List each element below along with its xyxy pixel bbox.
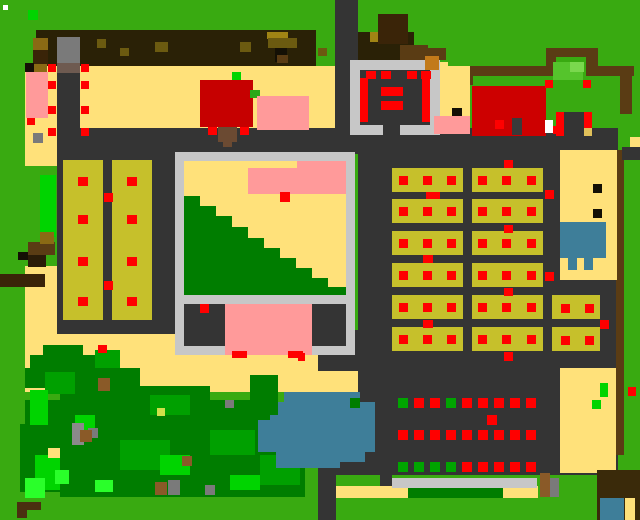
red-house-east[interactable]: [472, 86, 546, 136]
stall-dot[interactable]: [447, 303, 456, 312]
shrine-lamp: [421, 71, 431, 79]
crop-dot[interactable]: [127, 177, 137, 186]
stall-dot[interactable]: [447, 207, 456, 216]
crop-dot[interactable]: [127, 257, 137, 266]
apple-door-step: [223, 138, 232, 147]
hedge-dark: [408, 488, 503, 498]
apple-stem: [232, 72, 241, 80]
tree-patch: [250, 375, 278, 415]
gate-dot[interactable]: [48, 64, 56, 72]
east-gate[interactable]: [564, 112, 584, 136]
bench-gray: [392, 478, 537, 488]
wall-end-gold: [33, 38, 48, 50]
gate-dot[interactable]: [48, 128, 56, 136]
post-brown: [540, 473, 550, 497]
stump-black: [18, 252, 28, 260]
path-dot[interactable]: [504, 225, 513, 233]
crowd-dot[interactable]: [487, 415, 497, 425]
wall-speckle-4: [240, 42, 251, 52]
forest-canopy-light: [230, 475, 260, 490]
stall-dot[interactable]: [399, 303, 408, 312]
forest-trunk: [80, 430, 92, 442]
market-hall-divider: [184, 295, 346, 304]
stall-dot[interactable]: [399, 271, 408, 280]
market-field-step: [328, 287, 346, 295]
crowd-dot[interactable]: [398, 430, 408, 440]
stall-dot[interactable]: [502, 176, 511, 185]
stall-dot[interactable]: [423, 303, 432, 312]
stall-dot[interactable]: [478, 207, 487, 216]
crowd-dot[interactable]: [526, 398, 536, 408]
wall-speckle-3: [155, 42, 168, 52]
road-stub-east: [622, 147, 640, 160]
stall-dot[interactable]: [478, 271, 487, 280]
pig-snout: [598, 232, 606, 248]
crop-dot[interactable]: [78, 215, 88, 224]
gate-dot[interactable]: [81, 106, 89, 114]
crowd-dot[interactable]: [446, 462, 456, 472]
black-pixel-wall: [25, 63, 34, 72]
forest-canopy-mid: [45, 372, 75, 394]
ground-below-road: [320, 371, 362, 392]
stall-dot[interactable]: [585, 304, 594, 313]
shrine-lamp: [407, 71, 417, 79]
crop-dot[interactable]: [78, 297, 88, 306]
shrine-emblem-bottom: [381, 101, 403, 110]
crowd-dot[interactable]: [494, 398, 504, 408]
sheep-muzzle: [434, 116, 470, 134]
red-pixel-roadside: [298, 353, 305, 361]
shrine-foot-l: [350, 125, 383, 135]
gate-dot[interactable]: [48, 106, 56, 114]
tree-canopy-top: [378, 14, 408, 44]
road-pocket: [336, 462, 380, 475]
dot-forest[interactable]: [98, 345, 107, 353]
market-field-step: [184, 196, 200, 295]
sprout-pixel-2: [592, 400, 601, 409]
forest-rock: [168, 480, 180, 495]
market-field-step: [248, 238, 264, 295]
market-field-step: [296, 268, 312, 295]
stall-dot[interactable]: [527, 271, 536, 280]
stall-dot[interactable]: [527, 239, 536, 248]
crop-dot[interactable]: [127, 297, 137, 306]
lime-pixel-topleft: [28, 10, 38, 20]
market-field-step: [200, 206, 216, 295]
market-field-step: [280, 258, 296, 295]
dot-market-south[interactable]: [200, 304, 209, 313]
red-house-door[interactable]: [512, 118, 522, 135]
crowd-dot[interactable]: [510, 430, 520, 440]
crowd-dot[interactable]: [462, 398, 472, 408]
stall-dot[interactable]: [527, 335, 536, 344]
forest-canopy: [25, 368, 140, 388]
market-field-step: [216, 216, 232, 295]
stall-dot[interactable]: [502, 239, 511, 248]
court-dot-mid-2[interactable]: [104, 281, 113, 290]
crowd-dot[interactable]: [430, 398, 440, 408]
bush-east-light: [570, 62, 584, 72]
forest-canopy-mid: [210, 430, 255, 455]
apple-house[interactable]: [200, 80, 253, 127]
entrance-mark-l: [232, 351, 247, 358]
ground-pocket-east: [630, 137, 640, 147]
stall-dot[interactable]: [527, 207, 536, 216]
stall-dot[interactable]: [399, 207, 408, 216]
stall-dot[interactable]: [423, 239, 432, 248]
shrine-doorway[interactable]: [383, 125, 400, 140]
stall-dot[interactable]: [447, 239, 456, 248]
stall-dot[interactable]: [423, 176, 432, 185]
crowd-dot[interactable]: [494, 462, 504, 472]
crop-dot[interactable]: [127, 215, 137, 224]
path-dot[interactable]: [545, 272, 554, 281]
pond: [330, 450, 365, 462]
stall-dot[interactable]: [478, 239, 487, 248]
east-gate-post-l: [556, 112, 564, 136]
stall-dot[interactable]: [527, 176, 536, 185]
lime-yellow-pixel: [157, 408, 165, 416]
pig-leg-2: [584, 258, 593, 270]
apple-dot-r[interactable]: [240, 127, 249, 135]
crop-dot[interactable]: [78, 257, 88, 266]
tree-gold-pixel: [370, 32, 378, 42]
pink-house-west[interactable]: [26, 72, 48, 118]
gray-pixel-west: [33, 133, 43, 143]
stall-dot[interactable]: [447, 176, 456, 185]
gate-dot[interactable]: [81, 64, 89, 72]
path-dot[interactable]: [600, 320, 609, 329]
crowd-dot[interactable]: [414, 398, 424, 408]
stall-dot[interactable]: [502, 303, 511, 312]
pig-leg-1: [568, 258, 577, 270]
forest-canopy-neon: [55, 470, 69, 484]
crowd-dot[interactable]: [462, 462, 472, 472]
stall-dot[interactable]: [447, 335, 456, 344]
stall-dot[interactable]: [585, 336, 594, 345]
map-canvas[interactable]: [0, 0, 640, 520]
forest-rock: [205, 485, 215, 495]
road-south-narrow[interactable]: [318, 468, 336, 520]
corner-ground: [625, 498, 635, 520]
gate-dot[interactable]: [48, 81, 56, 89]
crowd-dot[interactable]: [526, 430, 536, 440]
market-hall-entrance[interactable]: [225, 304, 312, 355]
sprout-pixel-1: [600, 383, 608, 397]
shrine-lamp: [381, 71, 391, 79]
orange-crate: [425, 56, 439, 70]
stall-dot[interactable]: [423, 335, 432, 344]
crowd-dot[interactable]: [430, 430, 440, 440]
crowd-dot[interactable]: [430, 462, 440, 472]
pond: [258, 420, 375, 452]
stall-dot[interactable]: [478, 176, 487, 185]
dot-by-pink-house[interactable]: [27, 118, 35, 125]
post-gray: [550, 478, 559, 497]
path-dot[interactable]: [504, 288, 513, 296]
crop-dot[interactable]: [78, 177, 88, 186]
pond-green-pixel: [350, 398, 360, 408]
crowd-dot[interactable]: [494, 430, 504, 440]
fence-post-g: [620, 66, 632, 114]
stall-dot[interactable]: [478, 335, 487, 344]
market-hall-pink-roof-b: [248, 168, 346, 194]
stall-dot[interactable]: [527, 303, 536, 312]
stall-dot[interactable]: [423, 271, 432, 280]
fence-right: [616, 150, 624, 455]
path-dot[interactable]: [504, 160, 513, 168]
market-hall-border-bl: [184, 346, 225, 355]
dot-market-yard[interactable]: [280, 192, 290, 202]
crowd-dot[interactable]: [414, 462, 424, 472]
crowd-dot[interactable]: [478, 398, 488, 408]
log-dark: [0, 274, 45, 287]
north-gate[interactable]: [57, 37, 80, 63]
crowd-dot[interactable]: [510, 462, 520, 472]
seat-dot-1: [593, 184, 602, 193]
shrine-lamp: [366, 71, 376, 79]
crowd-dot[interactable]: [398, 462, 408, 472]
forest-trunk: [182, 456, 192, 466]
forest-trunk: [155, 482, 167, 495]
wall-creature-nose: [277, 55, 288, 63]
shrine-pillar-l: [360, 78, 368, 122]
stall-dot[interactable]: [478, 303, 487, 312]
gold-pixel-east: [584, 128, 592, 136]
dot-ne-1[interactable]: [545, 80, 553, 88]
gate-path[interactable]: [57, 73, 80, 130]
gate-dot[interactable]: [81, 128, 89, 136]
stump-gold: [40, 232, 54, 244]
market-hall-border-br: [312, 346, 346, 355]
stump-dark: [28, 255, 46, 267]
forest-canopy-mid: [150, 395, 190, 415]
stall-dot[interactable]: [502, 335, 511, 344]
stall-dot[interactable]: [561, 304, 570, 313]
forest-clearing: [48, 448, 60, 458]
path-dot[interactable]: [423, 255, 433, 263]
white-pixel-east: [545, 120, 553, 133]
path-dot[interactable]: [426, 192, 440, 199]
wall-creature-body: [268, 38, 297, 48]
stall-dot[interactable]: [502, 207, 511, 216]
shrine-pillar-r: [422, 78, 430, 122]
stall-dot[interactable]: [502, 271, 511, 280]
wall-speckle-5: [318, 48, 327, 56]
crowd-dot[interactable]: [478, 462, 488, 472]
gray-pixel-path: [225, 400, 234, 408]
shrine-emblem-top: [381, 87, 403, 96]
market-field-step: [312, 278, 328, 295]
path-dot[interactable]: [504, 352, 513, 361]
crowd-dot[interactable]: [414, 430, 424, 440]
crowd-dot[interactable]: [446, 398, 456, 408]
fence-post-e: [586, 48, 598, 76]
forest-canopy-neon: [95, 480, 113, 492]
pink-house-center[interactable]: [257, 96, 309, 130]
stall-dot[interactable]: [399, 335, 408, 344]
crowd-dot[interactable]: [478, 430, 488, 440]
dot-ne-2[interactable]: [583, 80, 591, 88]
forest-trunk: [98, 378, 110, 391]
path-dot[interactable]: [423, 320, 433, 328]
forest-canopy-neon: [25, 478, 45, 498]
corner-pond: [600, 498, 624, 520]
seat-dot-2: [593, 209, 602, 218]
sign-brown-b: [17, 508, 27, 518]
grass-bright-patch-left: [40, 175, 56, 237]
market-field-step: [232, 227, 248, 295]
dot-in-red-house[interactable]: [495, 120, 504, 129]
path-dot[interactable]: [545, 190, 554, 199]
stall-dot[interactable]: [447, 271, 456, 280]
stall-dot[interactable]: [399, 176, 408, 185]
crowd-dot[interactable]: [462, 430, 472, 440]
court-dot-mid-1[interactable]: [104, 193, 113, 202]
market-field-step: [264, 248, 280, 295]
crowd-dot[interactable]: [510, 398, 520, 408]
crowd-dot[interactable]: [398, 398, 408, 408]
stall-dot[interactable]: [561, 336, 570, 345]
crowd-dot[interactable]: [526, 462, 536, 472]
white-pixel-corner: [3, 5, 8, 10]
wall-speckle-2: [120, 48, 129, 56]
stall-dot[interactable]: [423, 207, 432, 216]
wall-speckle-1: [97, 39, 106, 48]
dot-by-fence[interactable]: [628, 387, 636, 396]
crowd-dot[interactable]: [446, 430, 456, 440]
forest-canopy-light: [30, 390, 48, 425]
gate-dot[interactable]: [81, 81, 89, 89]
apple-dot-l[interactable]: [208, 127, 217, 135]
north-gate-base: [57, 63, 80, 73]
stall-dot[interactable]: [399, 239, 408, 248]
